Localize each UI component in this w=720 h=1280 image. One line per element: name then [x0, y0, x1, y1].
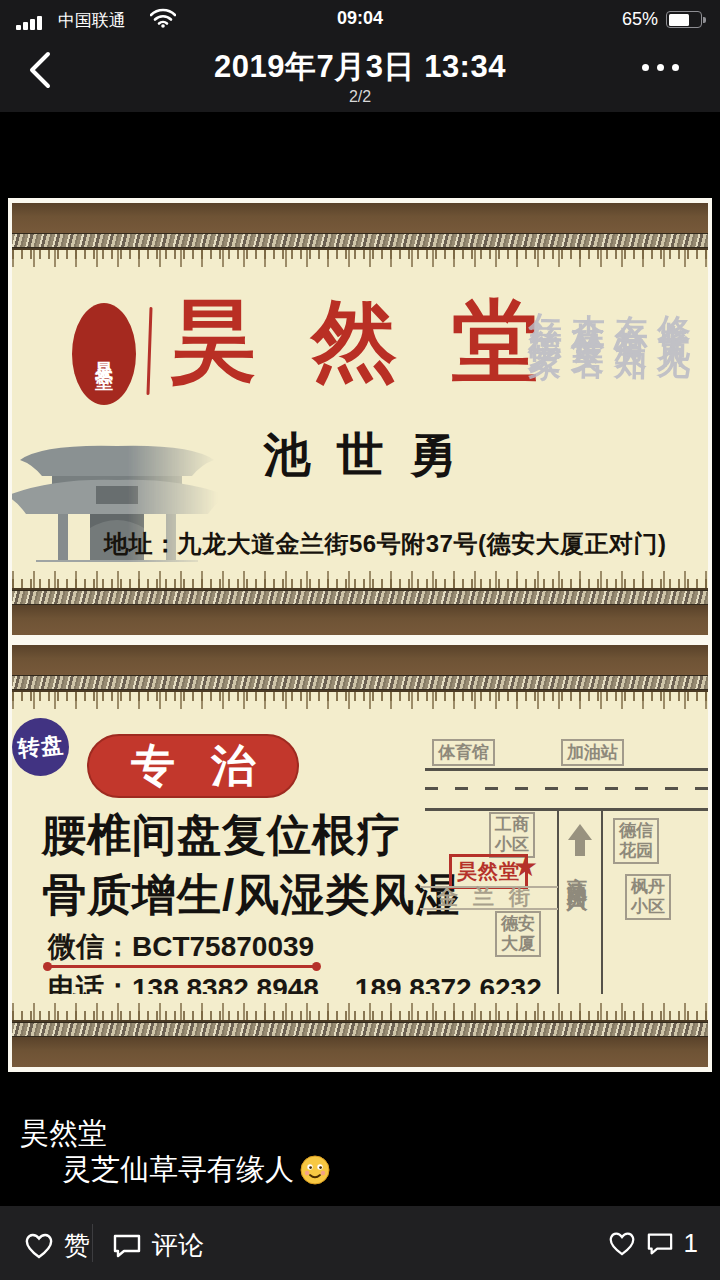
header-bar: 中国联通 09:04 65% 2019年7月3日 13:34 2/2	[0, 0, 720, 112]
battlement-ornament	[12, 994, 708, 1022]
card-back-body: 专治 腰椎间盘复位根疗 骨质增生/风湿类风湿 微信：BCT75870039 电话…	[12, 718, 708, 994]
mosaic-strip	[12, 590, 708, 605]
comment-bubble-icon	[646, 1231, 674, 1257]
card-border-bottom	[12, 605, 708, 635]
page-indicator: 2/2	[0, 88, 720, 106]
brand-calligraphy-title: 昊 然 堂	[170, 288, 538, 391]
mosaic-strip	[12, 1022, 708, 1037]
photo-viewer-screen: 中国联通 09:04 65% 2019年7月3日 13:34 2/2 昊然堂	[0, 0, 720, 1280]
engagement-summary[interactable]: 1	[608, 1228, 698, 1259]
map-label-dexin-garden: 德信 花园	[613, 818, 659, 864]
action-toolbar: 赞 评论 1	[0, 1206, 720, 1280]
battlement-ornament	[12, 562, 708, 590]
map-label-stadium: 体育馆	[432, 739, 495, 766]
comment-bubble-icon	[112, 1232, 142, 1260]
caption-title: 昊然堂	[20, 1114, 107, 1154]
card-border-bottom	[12, 1037, 708, 1067]
star-icon: ★	[513, 850, 538, 883]
location-map: 体育馆 加油站 转盘 高速路入口 工商 小区 昊然堂 ★ 金兰街 德安 大厦 德…	[12, 718, 708, 994]
card-front-body: 昊然堂 昊 然 堂 修合无人见 存心有天知 杏林传美名 仁慈德之家 池世勇	[12, 276, 708, 562]
heart-icon	[24, 1232, 54, 1260]
battery-icon	[666, 11, 702, 28]
comment-button[interactable]: 评论	[112, 1228, 204, 1263]
mosaic-strip	[12, 233, 708, 248]
smile-emoji-icon	[300, 1155, 330, 1185]
lattice-ornament	[12, 690, 708, 718]
road-line	[601, 808, 603, 994]
battery-percent: 65%	[622, 9, 658, 30]
mosaic-strip	[12, 675, 708, 690]
brand-char: 然	[311, 288, 397, 391]
dot-icon	[642, 64, 649, 71]
map-label-gas-station: 加油站	[561, 739, 624, 766]
comment-label: 评论	[152, 1228, 204, 1263]
caption-subtitle: 灵芝仙草寻有缘人	[62, 1150, 330, 1190]
clock: 09:04	[0, 8, 720, 29]
business-card-front[interactable]: 昊然堂 昊 然 堂 修合无人见 存心有天知 杏林传美名 仁慈德之家 池世勇	[8, 198, 712, 640]
lattice-ornament	[12, 248, 708, 276]
card-border-top	[12, 203, 708, 233]
like-button[interactable]: 赞	[24, 1228, 90, 1263]
business-card-back[interactable]: 专治 腰椎间盘复位根疗 骨质增生/风湿类风湿 微信：BCT75870039 电话…	[8, 640, 712, 1072]
roundabout-label: 转盘	[16, 730, 65, 765]
road-line	[425, 768, 708, 771]
like-label: 赞	[64, 1228, 90, 1263]
photo-date-title: 2019年7月3日 13:34	[0, 46, 720, 88]
road-line	[557, 808, 559, 994]
comment-count: 1	[684, 1228, 698, 1259]
more-options-button[interactable]	[628, 52, 692, 82]
caption-subtitle-text: 灵芝仙草寻有缘人	[62, 1150, 294, 1190]
dot-icon	[657, 64, 664, 71]
road-centerline	[425, 787, 708, 790]
up-arrow-icon	[568, 824, 592, 858]
map-label-fengdan-block: 枫丹 小区	[625, 874, 671, 920]
seal-text: 昊然堂	[92, 347, 116, 362]
toolbar-divider	[92, 1224, 93, 1262]
brand-char: 昊	[170, 288, 256, 391]
street-edge-line	[420, 908, 558, 910]
dot-icon	[672, 64, 679, 71]
map-label-dean-building: 德安 大厦	[495, 911, 541, 957]
card-border-top	[12, 645, 708, 675]
map-label-jinlan-street: 金兰街	[437, 883, 545, 911]
map-label-highway-entrance: 高速路入口	[563, 860, 591, 880]
seal-divider-stroke	[146, 307, 152, 395]
heart-icon	[608, 1231, 636, 1257]
address-line: 地址：九龙大道金兰街56号附37号(德安大厦正对门)	[104, 528, 666, 560]
road-line	[425, 808, 708, 811]
motto-calligraphy: 修合无人见 存心有天知 杏林传美名 仁慈德之家	[520, 287, 696, 540]
red-seal-stamp: 昊然堂	[72, 303, 136, 405]
map-roundabout: 转盘	[12, 718, 69, 776]
